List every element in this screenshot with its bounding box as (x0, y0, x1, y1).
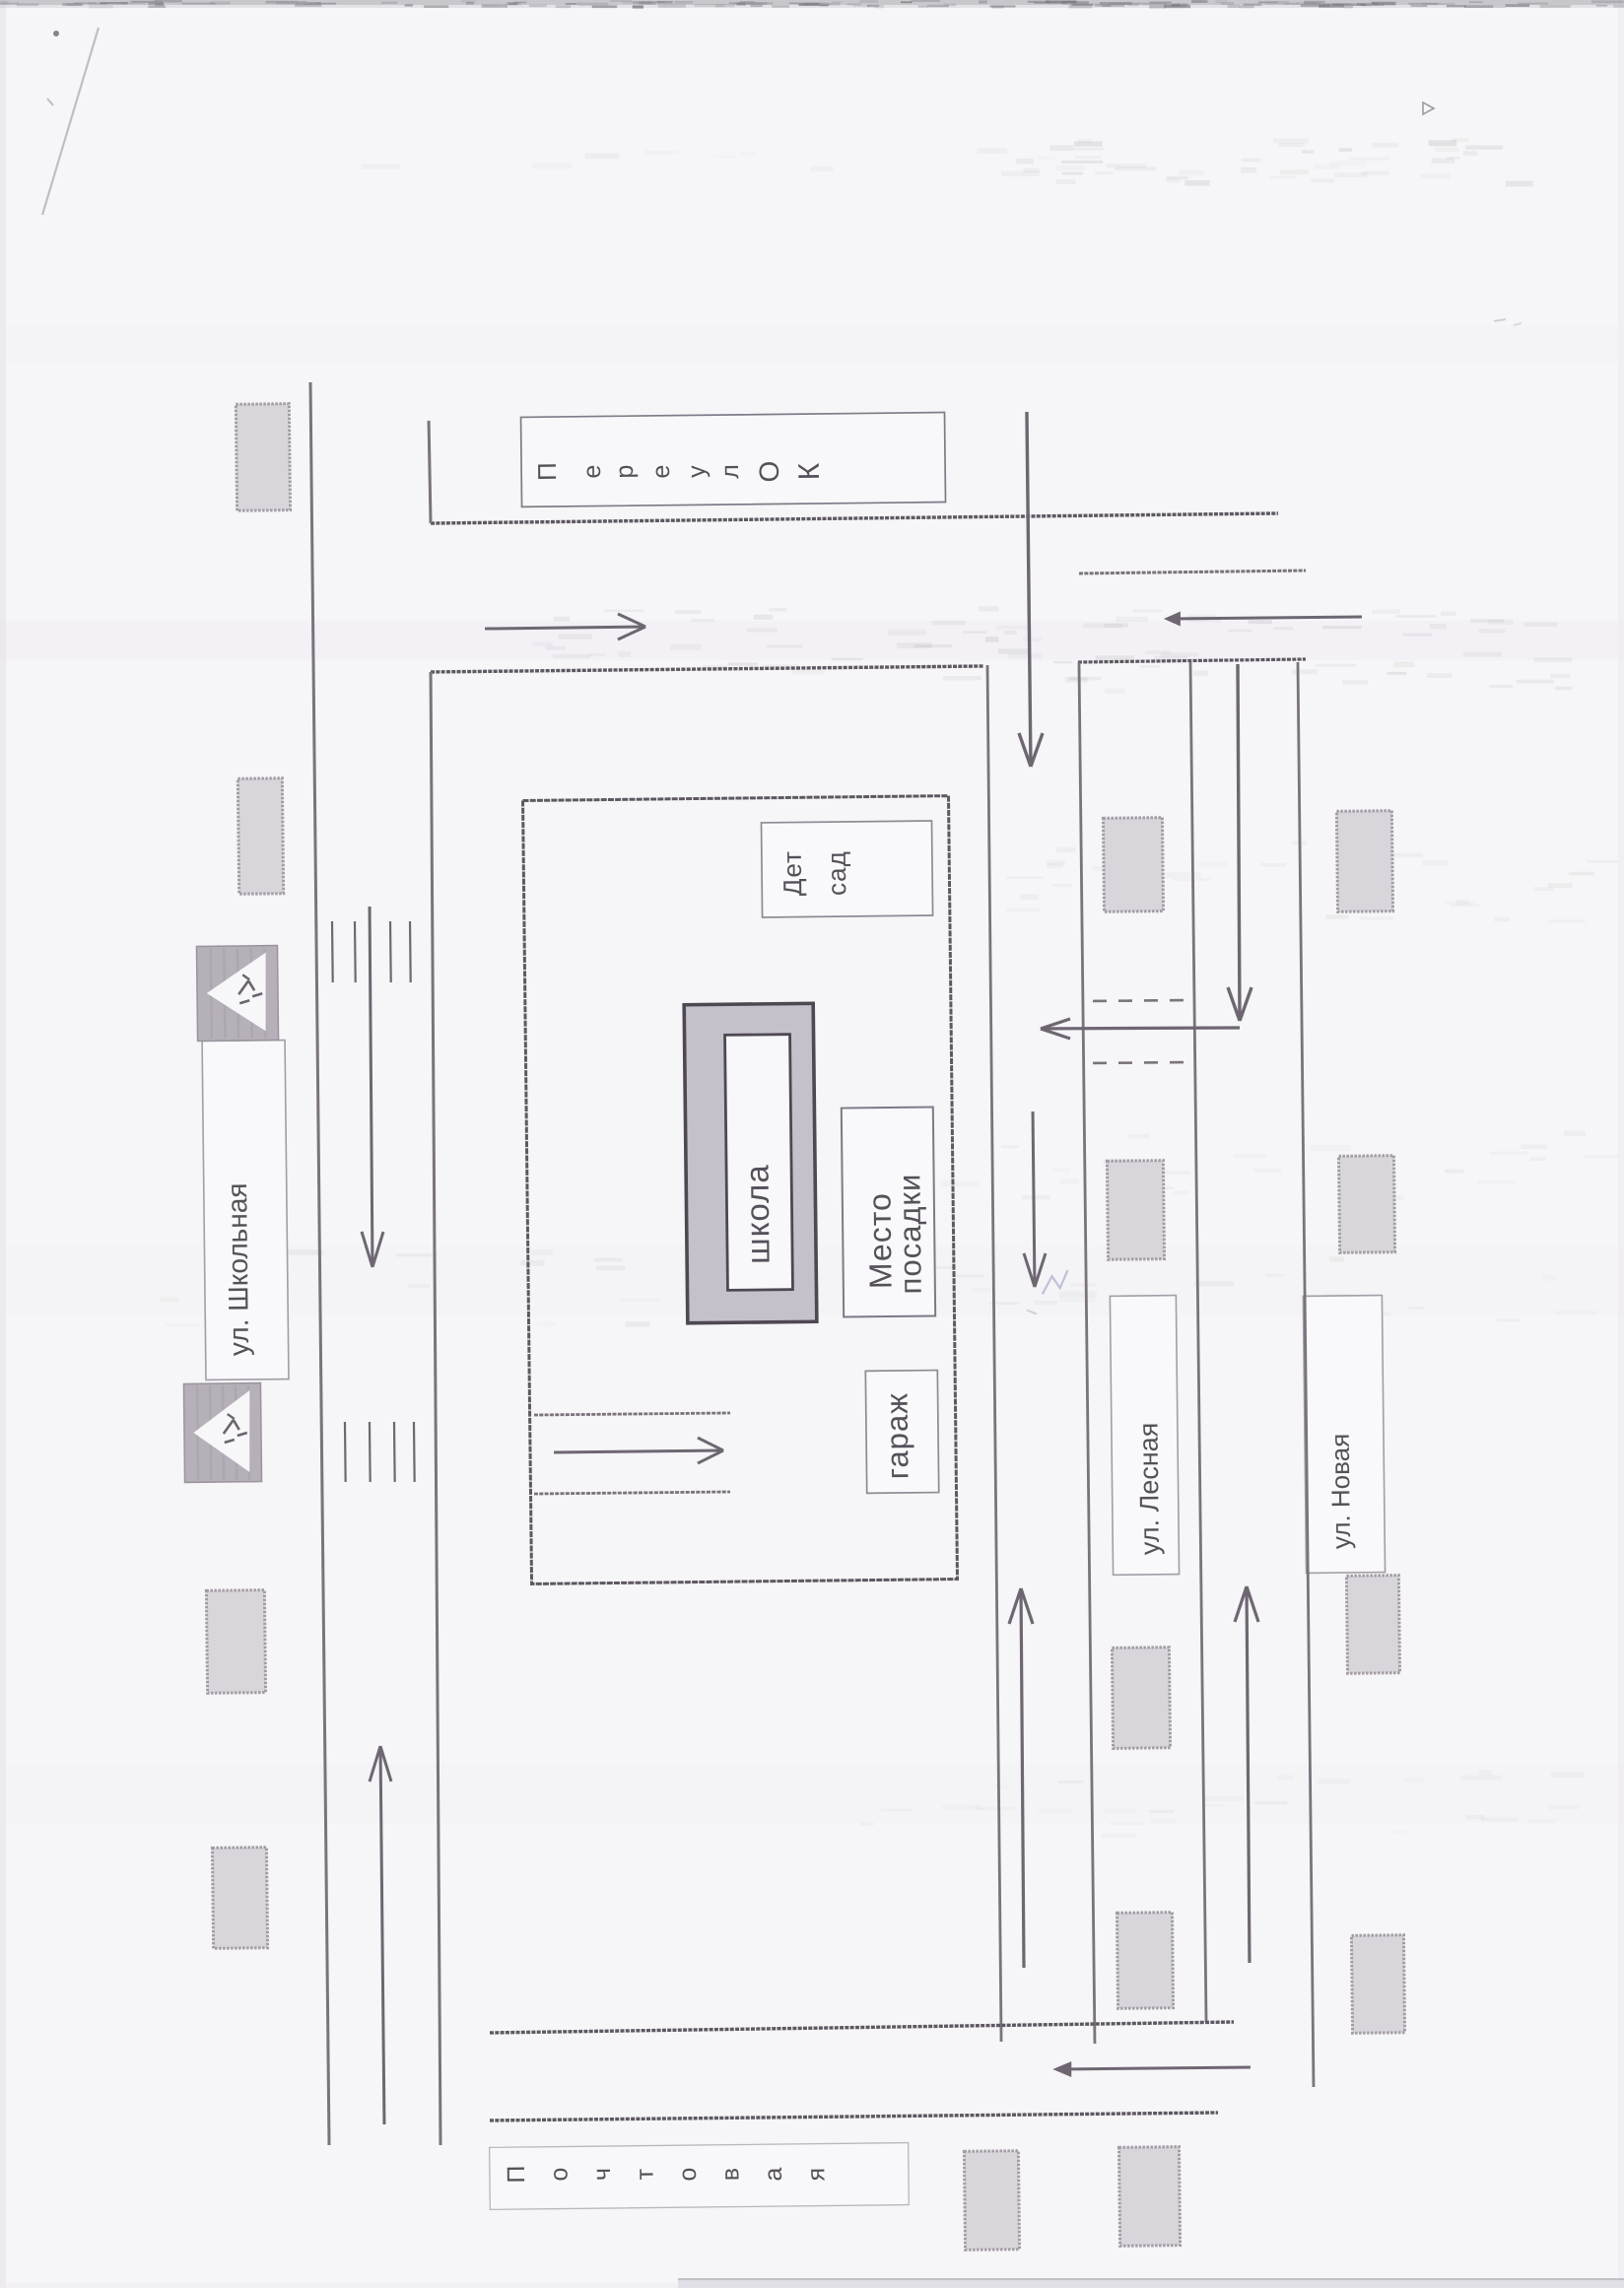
svg-text:о: о (674, 2166, 702, 2181)
svg-text:ул. Лесная: ул. Лесная (1133, 1423, 1165, 1556)
svg-text:Дет: Дет (778, 850, 808, 896)
svg-text:л: л (716, 463, 744, 479)
svg-text:ул. Школьная: ул. Школьная (222, 1182, 254, 1356)
svg-text:гараж: гараж (879, 1392, 914, 1479)
svg-text:в: в (716, 2167, 744, 2182)
svg-text:р: р (611, 463, 639, 478)
svg-text:о: о (545, 2166, 573, 2181)
svg-text:К: К (793, 462, 826, 481)
svg-text:школа: школа (738, 1164, 776, 1264)
svg-text:ч: ч (588, 2167, 616, 2181)
svg-text:е: е (578, 463, 606, 478)
svg-text:посадки: посадки (892, 1174, 927, 1295)
svg-text:сад: сад (822, 850, 852, 896)
svg-text:О: О (754, 460, 784, 483)
svg-text:е: е (647, 463, 675, 478)
svg-text:ул. Новая: ул. Новая (1325, 1434, 1356, 1550)
svg-text:а: а (760, 2166, 787, 2181)
svg-text:П: П (532, 461, 562, 481)
svg-text:у: у (683, 464, 710, 478)
svg-text:т: т (631, 2168, 658, 2181)
svg-text:я: я (802, 2167, 830, 2182)
svg-text:П: П (503, 2164, 530, 2183)
